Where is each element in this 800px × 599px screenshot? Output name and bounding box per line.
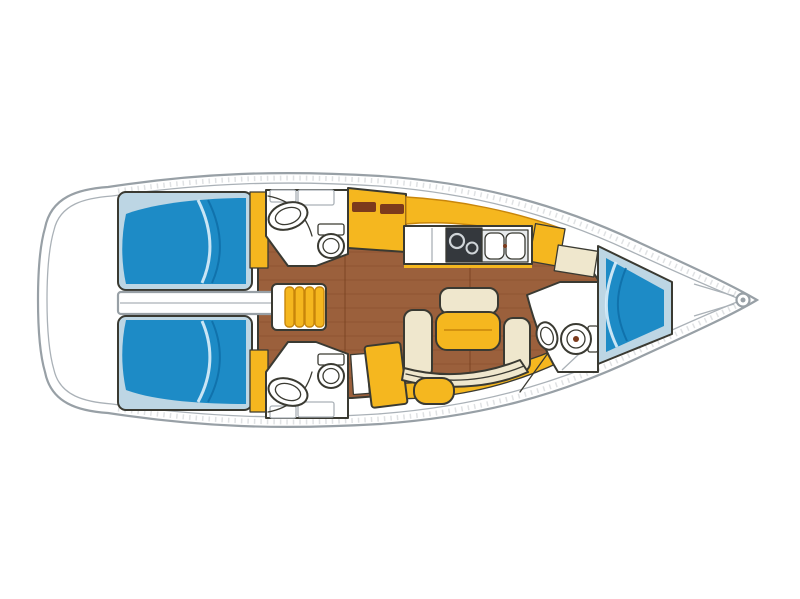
companionway-steps: [272, 284, 326, 330]
settee-headrest-top: [440, 288, 498, 314]
aft-port-berth-mattress: [122, 198, 246, 284]
anchor-roller-pin: [741, 298, 746, 303]
aft-cabin-starboard: [118, 316, 252, 410]
settee-back-left: [404, 310, 432, 378]
galley-sink-basin-2: [506, 233, 525, 259]
aft-head-port-shelf-2: [298, 190, 334, 205]
galley-faucet: [503, 244, 507, 248]
aft-cabin-port: [118, 192, 252, 290]
locker-vent-slot-1: [352, 202, 376, 212]
forward-head-toilet-drain: [573, 336, 579, 342]
step-1: [285, 287, 294, 327]
saloon-stool: [414, 378, 454, 404]
locker-vent-slot-2: [380, 204, 404, 214]
vberth-head-shelf: [554, 245, 598, 277]
chart-table: [364, 342, 407, 408]
step-2: [295, 287, 304, 327]
yacht-floor-plan: [0, 0, 800, 599]
step-3: [305, 287, 314, 327]
aft-head-stbd-toilet-bowl: [318, 364, 344, 388]
aft-stbd-berth-mattress: [122, 320, 246, 404]
step-4: [315, 287, 324, 327]
saloon-table: [436, 312, 500, 350]
floor-plan-drawing: [0, 0, 800, 599]
aft-head-stbd-shelf-2: [298, 402, 334, 417]
galley-locker-with-vents: [348, 188, 406, 252]
aft-head-port-toilet-bowl: [318, 234, 344, 258]
galley-sink-basin-1: [485, 233, 504, 259]
